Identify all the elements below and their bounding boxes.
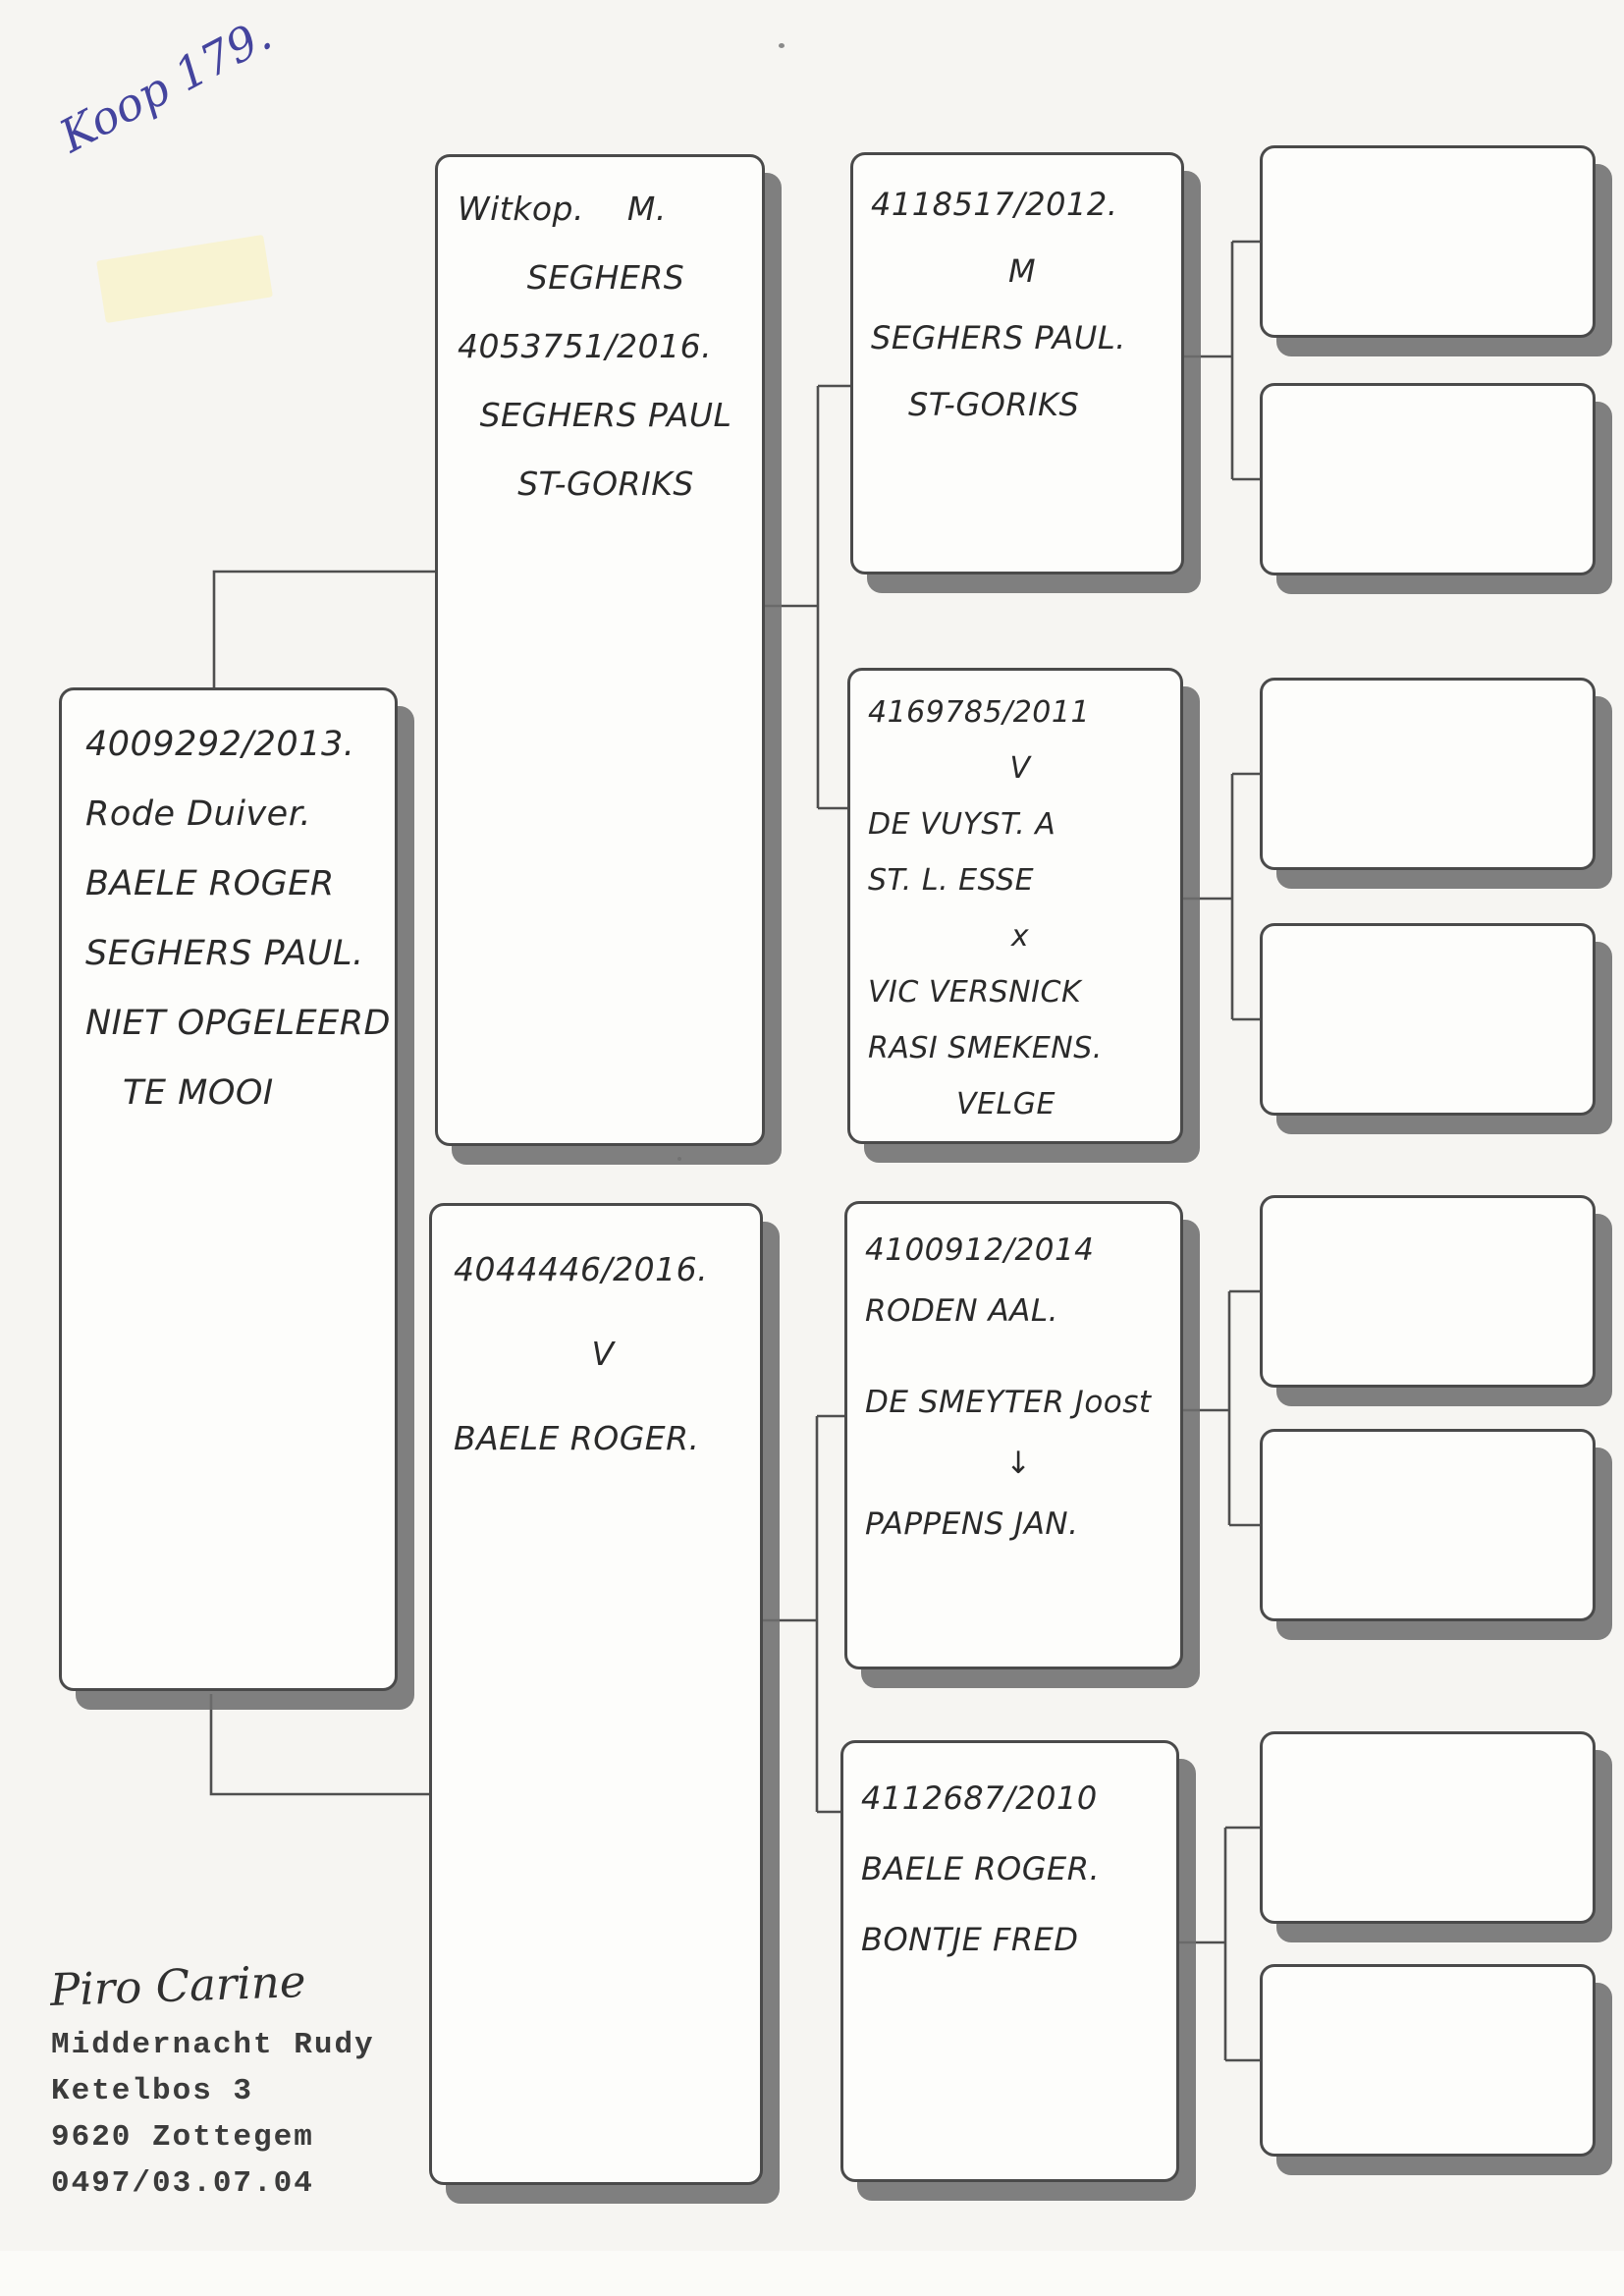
breeder-name: DE SMEYTER Joost [865, 1372, 1172, 1433]
great-grandparent-box-7 [1260, 1731, 1596, 1924]
grandparent-box-4: 4112687/2010 BAELE ROGER. BONTJE FRED [840, 1740, 1179, 2182]
ring-number: 4044446/2016. [454, 1228, 752, 1312]
remark: NIET OPGELEERD [85, 989, 395, 1059]
breeder-name: BONTJE FRED [861, 1904, 1168, 1975]
sex-mark: M [871, 238, 1173, 304]
color-note: RODEN AAL. [865, 1281, 1172, 1341]
owner-city: 9620 Zottegem [51, 2114, 375, 2160]
cross-mark: x [868, 908, 1172, 964]
breeder-name: SEGHERS PAUL. [871, 304, 1173, 371]
arrow-mark: ↓ [865, 1433, 1172, 1494]
owner-block: Piro Carine Middernacht Rudy Ketelbos 3 … [51, 1964, 375, 2207]
color-note: Rode Duiver. [85, 780, 395, 849]
sire-box: Witkop. M. SEGHERS 4053751/2016. SEGHERS… [435, 154, 765, 1146]
ring-number: 4053751/2016. [458, 312, 754, 381]
locality: ST-GORIKS [908, 371, 1173, 438]
connector-dam-grandparents [763, 1416, 844, 1812]
connector-gp3-greatgrandparents [1183, 1291, 1260, 1525]
great-grandparent-box-2 [1260, 383, 1596, 575]
great-grandparent-box-1 [1260, 145, 1596, 338]
connector-subject-sire [214, 572, 435, 687]
owner-signature: Piro Carine [49, 1953, 374, 2016]
breeder-name: BAELE ROGER. [454, 1396, 752, 1481]
sex-mark: V [454, 1312, 752, 1396]
ring-number: 4112687/2010 [861, 1763, 1168, 1833]
great-grandparent-box-6 [1260, 1429, 1596, 1621]
connector-subject-dam [211, 1694, 429, 1794]
breeder-name: BAELE ROGER [85, 849, 395, 919]
ring-number: 4169785/2011 [868, 684, 1172, 740]
sex-mark: V [868, 740, 1172, 796]
breeder-name: DE VUYST. A [868, 796, 1172, 852]
strain-name: SEGHERS [458, 244, 754, 312]
connector-gp2-greatgrandparents [1183, 774, 1260, 1019]
great-grandparent-box-3 [1260, 678, 1596, 870]
grandparent-box-1: 4118517/2012. M SEGHERS PAUL. ST-GORIKS [850, 152, 1184, 574]
breeder-name: SEGHERS PAUL [458, 381, 754, 450]
grandparent-box-2: 4169785/2011 V DE VUYST. A ST. L. ESSE x… [847, 668, 1183, 1144]
connector-gp1-greatgrandparents [1184, 242, 1260, 479]
breeder-name: PAPPENS JAN. [865, 1494, 1172, 1555]
great-grandparent-box-8 [1260, 1964, 1596, 2157]
remark: TE MOOI [123, 1059, 395, 1128]
breeder-name: BAELE ROGER. [861, 1833, 1168, 1904]
blank-line [865, 1341, 1172, 1372]
ring-number: 4009292/2013. [85, 710, 395, 780]
great-grandparent-box-4 [1260, 923, 1596, 1116]
scan-bottom-edge [0, 2251, 1624, 2296]
owner-street: Ketelbos 3 [51, 2068, 375, 2114]
locality: ST-GORIKS [458, 450, 754, 519]
pedigree-sheet: Koop 179. 4009292/2013. Rode Duiver. BAE… [0, 0, 1624, 2296]
great-grandparent-box-5 [1260, 1195, 1596, 1388]
breeder-name: SEGHERS PAUL. [85, 919, 395, 989]
grandparent-box-3: 4100912/2014 RODEN AAL. DE SMEYTER Joost… [844, 1201, 1183, 1669]
strain-name: Witkop. M. [458, 175, 754, 244]
connector-sire-grandparents [765, 386, 850, 808]
locality: VELGE [956, 1076, 1172, 1132]
ring-number: 4118517/2012. [871, 171, 1173, 238]
owner-name: Middernacht Rudy [51, 2022, 375, 2068]
dam-box: 4044446/2016. V BAELE ROGER. [429, 1203, 763, 2185]
owner-phone: 0497/03.07.04 [51, 2160, 375, 2207]
connector-gp4-greatgrandparents [1179, 1828, 1260, 2060]
subject-box: 4009292/2013. Rode Duiver. BAELE ROGER S… [59, 687, 398, 1691]
locality: ST. L. ESSE [868, 852, 1172, 908]
ring-number: 4100912/2014 [865, 1220, 1172, 1281]
breeder-name: VIC VERSNICK [868, 964, 1172, 1020]
strain-name: RASI SMEKENS. [868, 1020, 1172, 1076]
